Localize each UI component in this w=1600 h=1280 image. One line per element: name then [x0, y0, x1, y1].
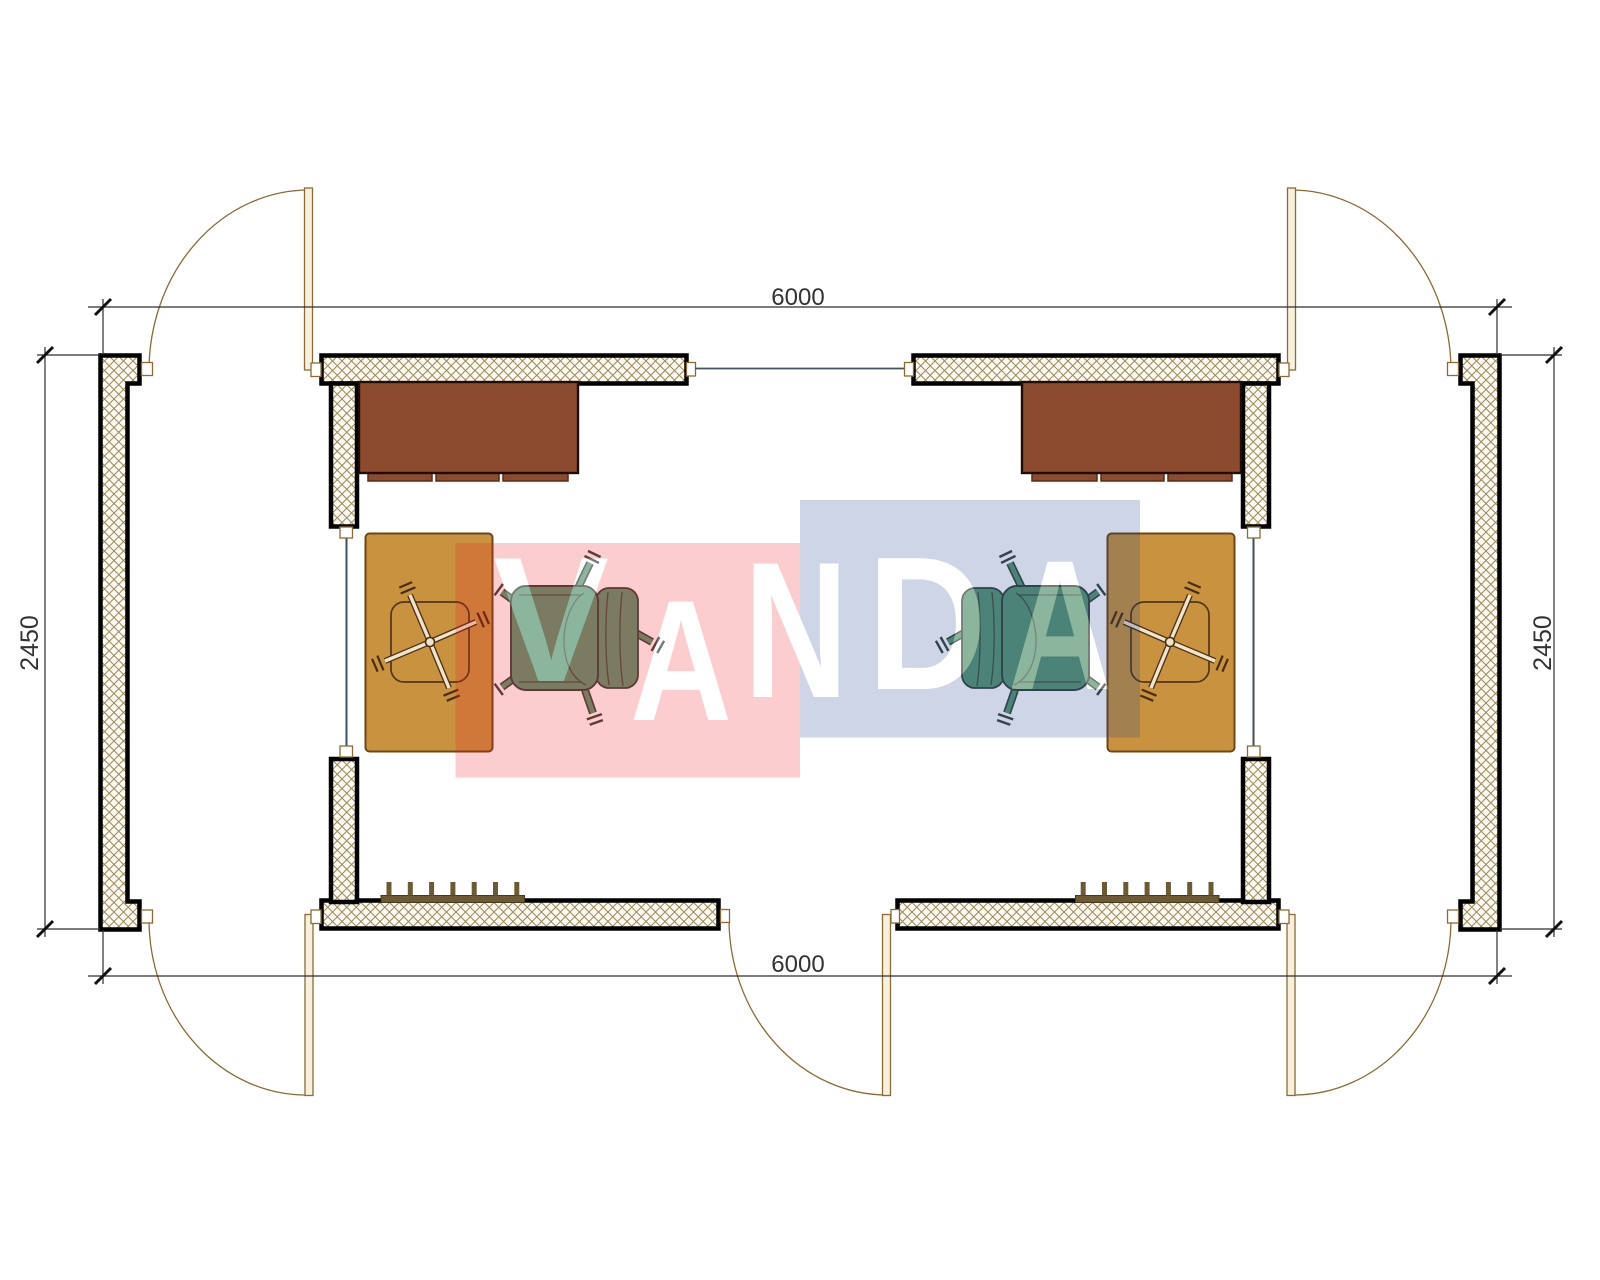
svg-text:6000: 6000 [771, 951, 824, 978]
svg-text:2450: 2450 [16, 615, 44, 671]
svg-text:2450: 2450 [1529, 615, 1557, 671]
svg-text:6000: 6000 [771, 284, 824, 311]
